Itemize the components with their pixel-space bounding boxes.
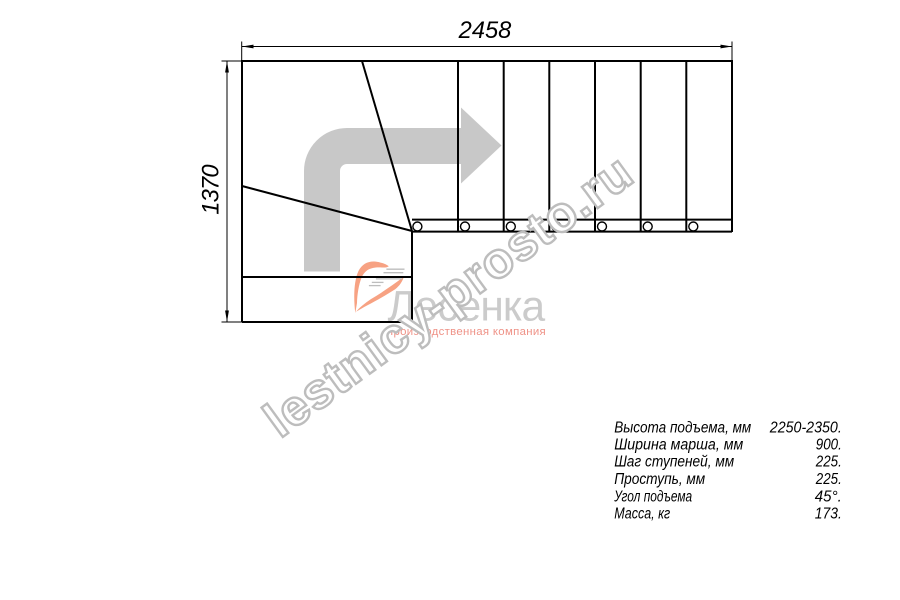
svg-text:900.: 900. xyxy=(816,436,842,453)
svg-text:45°.: 45°. xyxy=(815,488,842,505)
svg-text:1370: 1370 xyxy=(199,165,225,215)
svg-text:Шаг ступеней, мм: Шаг ступеней, мм xyxy=(614,454,734,471)
svg-text:225.: 225. xyxy=(815,454,842,471)
svg-text:Угол подъема: Угол подъема xyxy=(613,488,692,505)
svg-text:Ширина марша, мм: Ширина марша, мм xyxy=(614,436,743,453)
svg-text:2250-2350.: 2250-2350. xyxy=(769,419,842,436)
svg-text:2458: 2458 xyxy=(458,18,513,44)
svg-text:Высота подъема, мм: Высота подъема, мм xyxy=(614,419,751,436)
svg-text:173.: 173. xyxy=(815,506,842,523)
svg-text:225.: 225. xyxy=(815,471,842,488)
svg-text:Масса, кг: Масса, кг xyxy=(614,506,670,523)
svg-text:Проступь, мм: Проступь, мм xyxy=(614,471,705,488)
